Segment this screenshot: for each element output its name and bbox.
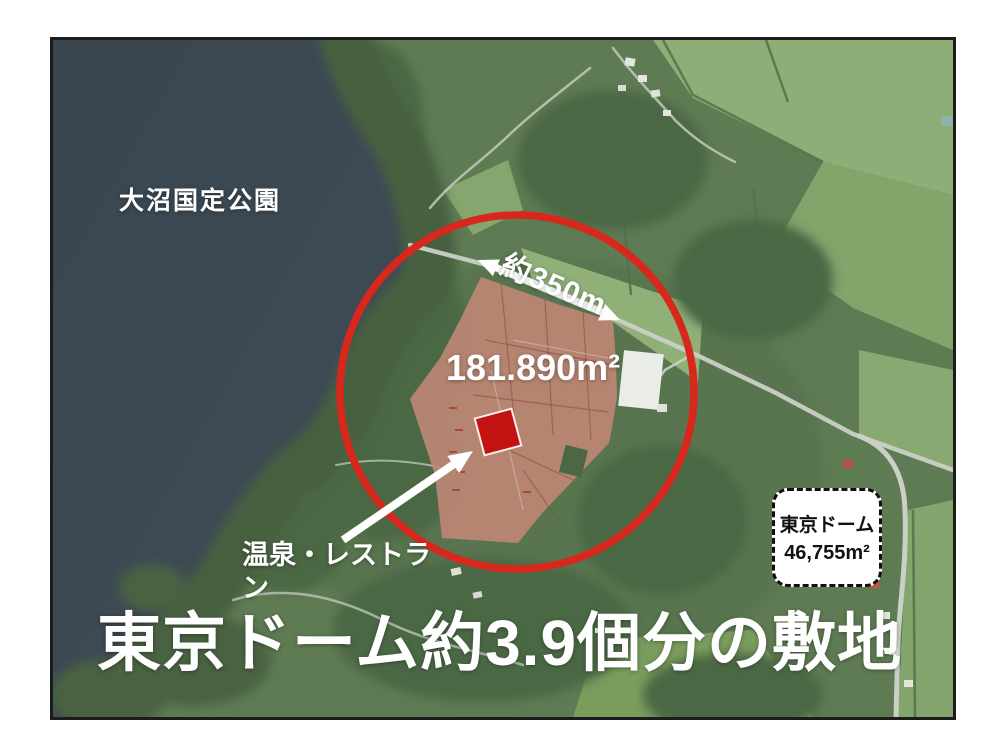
site-area-label: 181.890m² — [446, 347, 620, 389]
park-label: 大沼国定公園 — [119, 181, 281, 217]
dome-info-box: 東京ドーム 46,755m² — [772, 488, 882, 587]
caption: 東京ドーム約3.9個分の敷地 — [97, 592, 902, 684]
facility-label-line1: 温泉・レストラ — [242, 539, 431, 572]
site-marker — [475, 409, 522, 456]
dome-area: 46,755m² — [784, 542, 870, 565]
slide: { "page": { "background": "#ffffff" }, "… — [0, 0, 1008, 756]
dome-title: 東京ドーム — [780, 510, 874, 537]
